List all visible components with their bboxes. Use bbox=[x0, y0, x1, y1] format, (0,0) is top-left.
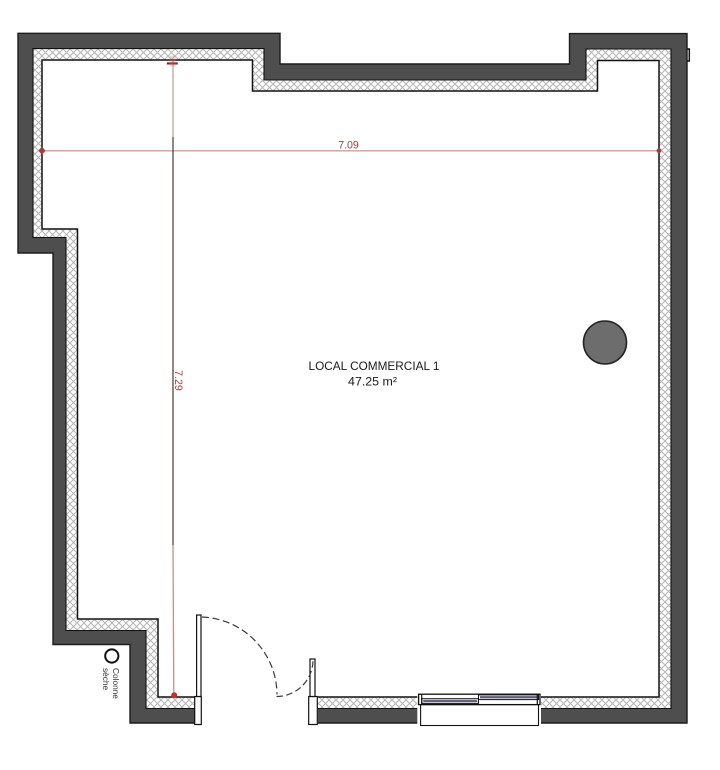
svg-text:LOCAL COMMERCIAL 1: LOCAL COMMERCIAL 1 bbox=[309, 359, 440, 373]
svg-text:Colonne: Colonne bbox=[111, 668, 121, 699]
svg-text:47.25 m²: 47.25 m² bbox=[348, 375, 397, 389]
svg-text:sèche: sèche bbox=[101, 668, 111, 691]
svg-text:7.29: 7.29 bbox=[172, 370, 184, 391]
svg-text:7.09: 7.09 bbox=[338, 140, 359, 152]
